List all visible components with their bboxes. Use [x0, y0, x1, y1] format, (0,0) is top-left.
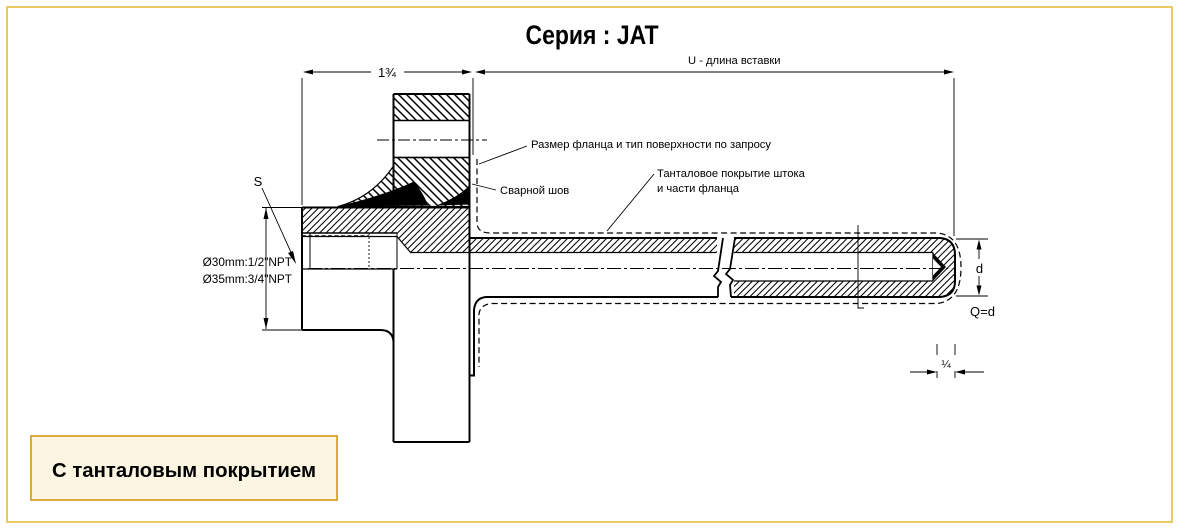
arrow-right	[462, 70, 472, 75]
flange-note: Размер фланца и тип поверхности по запро…	[531, 139, 771, 151]
arrow-down	[977, 286, 982, 296]
arrow-up	[264, 208, 269, 219]
coating-note-line-2: и части фланца	[657, 183, 740, 195]
callout-notes: Размер фланца и тип поверхности по запро…	[472, 139, 806, 231]
dim-q-label: Q=d	[970, 304, 995, 319]
npt-line-1: Ø30mm:1/2"NPT	[203, 255, 292, 269]
dim-d-label: d	[976, 261, 983, 276]
arrow-left	[475, 70, 485, 75]
stem-bottom-wall-right	[734, 281, 933, 297]
flange-top-hatch	[394, 95, 469, 121]
thermowell-datasheet-page: 1¾ U - длина вставки S Ø30mm:1/2"NPT Ø35…	[0, 0, 1179, 529]
arrow-down	[264, 318, 269, 329]
npt-line-2: Ø35mm:3/4"NPT	[203, 272, 292, 286]
dim-1-3-4-label: 1¾	[378, 65, 396, 80]
dim-quarter-label: ¼	[941, 359, 951, 371]
flange-section	[338, 94, 487, 442]
s-leader	[262, 188, 294, 259]
dimension-s: S	[254, 174, 302, 330]
head-bore-lines	[302, 237, 397, 270]
head-bar-hatch	[302, 208, 470, 234]
arrow-left	[303, 70, 313, 75]
stem-top-wall-right	[734, 238, 933, 253]
flange-plate	[394, 94, 470, 442]
coating-note-leader	[607, 174, 654, 231]
arrow-left	[955, 370, 965, 375]
npt-labels: Ø30mm:1/2"NPT Ø35mm:3/4"NPT	[203, 255, 292, 286]
stem-bore-right	[734, 253, 933, 282]
weld-note-leader	[472, 184, 496, 190]
head-inner-verticals	[310, 233, 397, 269]
coating-note-line-1: Танталовое покрытие штока	[657, 168, 806, 180]
arrow-up	[977, 240, 982, 250]
weld-note: Сварной шов	[500, 185, 569, 197]
stem-bottom-outer-left	[470, 297, 719, 376]
page-title: Серия : JAT	[526, 20, 659, 50]
footer-badge: С танталовым покрытием	[31, 436, 337, 500]
dimension-quarter: ¼	[910, 344, 984, 378]
arrow-right	[927, 370, 937, 375]
dim-s-label: S	[254, 174, 263, 189]
dimension-d: d Q=d	[956, 239, 995, 319]
footer-label: С танталовым покрытием	[52, 460, 316, 482]
arrow-right	[944, 70, 954, 75]
dim-u-label: U - длина вставки	[688, 55, 781, 67]
flange-note-leader	[479, 146, 527, 164]
stem-top-wall-left	[470, 238, 717, 253]
break-lines	[714, 238, 735, 297]
technical-drawing: 1¾ U - длина вставки S Ø30mm:1/2"NPT Ø35…	[0, 0, 1179, 529]
